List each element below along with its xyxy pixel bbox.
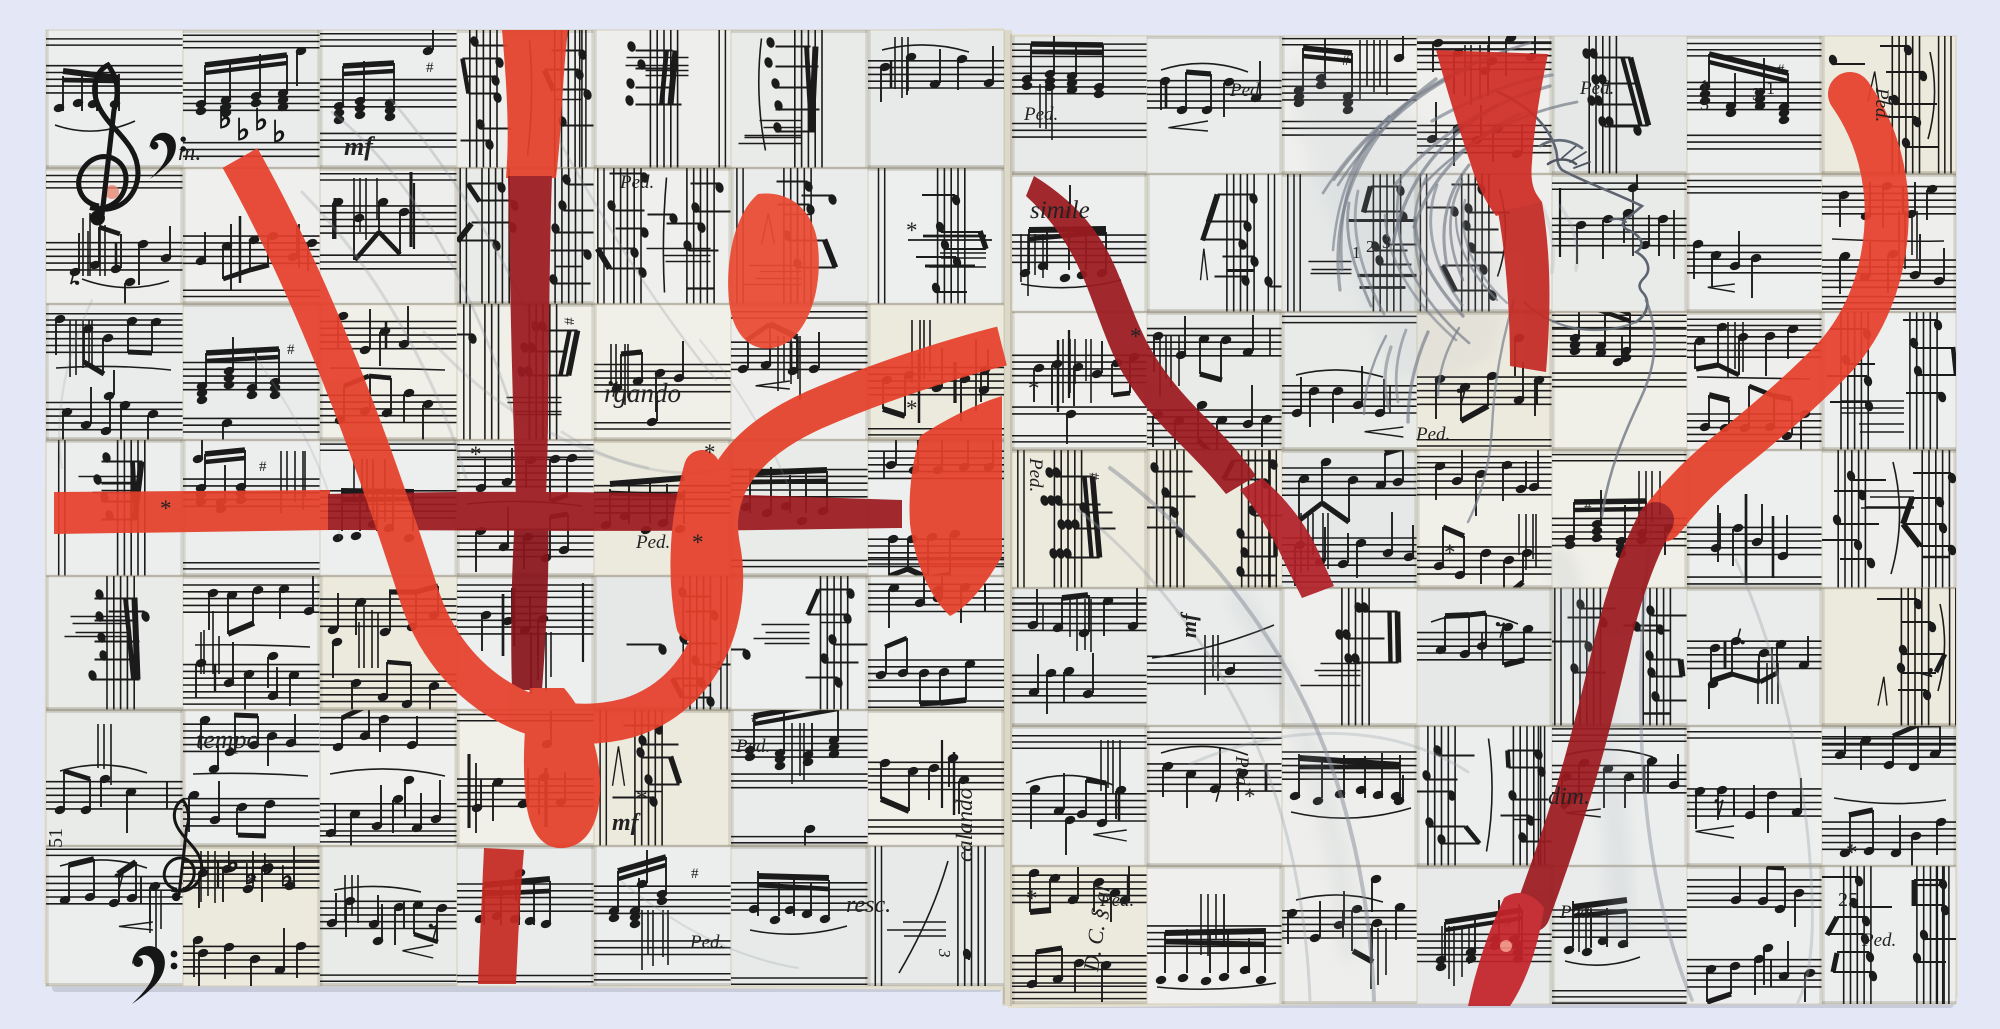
svg-text:#: # bbox=[259, 459, 267, 475]
svg-text:♭: ♭ bbox=[244, 860, 257, 891]
svg-text:rgando: rgando bbox=[604, 378, 681, 408]
svg-text:#: # bbox=[426, 60, 434, 76]
svg-text:3: 3 bbox=[1382, 233, 1391, 252]
svg-text:*: * bbox=[1244, 784, 1256, 809]
svg-text:simile: simile bbox=[1030, 197, 1090, 224]
svg-text:Ped.: Ped. bbox=[1559, 902, 1594, 923]
svg-text:*: * bbox=[704, 440, 716, 465]
svg-text:Ped.: Ped. bbox=[1025, 457, 1046, 492]
svg-text:#: # bbox=[1584, 498, 1592, 514]
svg-text:*: * bbox=[1026, 886, 1038, 911]
svg-text:♭: ♭ bbox=[262, 850, 275, 881]
svg-text:Ped.: Ped. bbox=[689, 932, 724, 953]
svg-text:resc.: resc. bbox=[846, 892, 891, 918]
svg-text:*: * bbox=[1846, 840, 1858, 865]
svg-text:*: * bbox=[1028, 376, 1040, 401]
svg-text:m.: m. bbox=[178, 140, 201, 166]
svg-text:*: * bbox=[160, 496, 172, 521]
svg-text:3: 3 bbox=[935, 948, 954, 958]
svg-text:25: 25 bbox=[1838, 889, 1858, 911]
svg-text:#: # bbox=[691, 866, 699, 882]
svg-text:Ped.: Ped. bbox=[1099, 890, 1134, 911]
svg-text:Ped.: Ped. bbox=[635, 532, 670, 553]
svg-text:mf: mf bbox=[612, 810, 641, 836]
svg-text:*: * bbox=[692, 530, 704, 555]
svg-text:1: 1 bbox=[1766, 78, 1775, 98]
svg-text:51: 51 bbox=[45, 828, 67, 848]
svg-text:♭: ♭ bbox=[226, 848, 239, 879]
svg-text:*: * bbox=[636, 786, 648, 811]
svg-text:♭: ♭ bbox=[272, 116, 286, 149]
svg-text:Ped.: Ped. bbox=[1579, 78, 1614, 99]
svg-text:#: # bbox=[561, 318, 577, 326]
svg-text:1: 1 bbox=[1700, 76, 1709, 96]
svg-text:#: # bbox=[1342, 53, 1350, 69]
svg-text:mf: mf bbox=[344, 132, 375, 161]
svg-text:Ped.: Ped. bbox=[1415, 424, 1450, 445]
svg-text:*: * bbox=[1130, 324, 1142, 349]
svg-text:3: 3 bbox=[1752, 84, 1761, 104]
svg-text:Ped.: Ped. bbox=[1861, 930, 1896, 951]
svg-text:Ped.: Ped. bbox=[735, 736, 770, 757]
svg-text:♭: ♭ bbox=[218, 102, 232, 135]
svg-text:Ped.: Ped. bbox=[1023, 104, 1058, 125]
svg-text:#: # bbox=[1086, 473, 1102, 481]
svg-text:*: * bbox=[906, 396, 918, 421]
svg-text:Ped.: Ped. bbox=[619, 172, 654, 193]
svg-text:*: * bbox=[470, 442, 482, 467]
svg-text:♭: ♭ bbox=[254, 104, 268, 137]
svg-text:2: 2 bbox=[1366, 237, 1375, 256]
svg-text:mf: mf bbox=[1176, 611, 1201, 638]
svg-text:Ped.: Ped. bbox=[1871, 87, 1892, 122]
svg-text:tempo: tempo bbox=[196, 725, 260, 754]
svg-text:calando: calando bbox=[952, 788, 977, 862]
svg-text:#: # bbox=[287, 342, 295, 358]
svg-text:1: 1 bbox=[1352, 243, 1361, 262]
svg-text:♭: ♭ bbox=[236, 114, 250, 147]
svg-text:dim.: dim. bbox=[1548, 784, 1590, 810]
svg-text:Ped.: Ped. bbox=[1229, 80, 1264, 101]
svg-text:3: 3 bbox=[1700, 94, 1709, 114]
svg-text:♭: ♭ bbox=[280, 862, 293, 893]
svg-text:#: # bbox=[1777, 62, 1785, 78]
svg-text:*: * bbox=[1444, 540, 1456, 565]
svg-text:*: * bbox=[906, 218, 918, 243]
svg-text:#: # bbox=[751, 710, 759, 726]
